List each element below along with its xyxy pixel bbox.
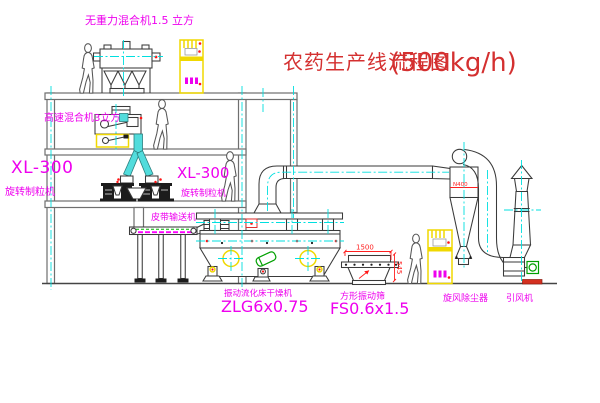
dim-sieve-height: 545: [395, 261, 403, 274]
label-granulator-right-name: 旋转制粒机: [181, 187, 226, 199]
label-granulator-left-model: XL-300: [11, 158, 73, 178]
cabinet-button: [439, 271, 442, 278]
gravity-free-mixer: [94, 42, 161, 94]
floor3-beam: [45, 201, 246, 208]
control-cabinet-bottom: [428, 230, 452, 284]
person-figure: [80, 44, 95, 93]
cad-drawing-canvas: 无重力混合机1.5 立方 农药生产线流程图 (500kg/h) 高速混合机3立方…: [0, 0, 600, 403]
cabinet-button: [434, 271, 437, 278]
cabinet-button: [185, 78, 188, 85]
mixer-outlet-valve: [120, 114, 129, 122]
label-sieve-model: FS0.6x1.5: [330, 299, 409, 318]
dim-cyclone: N400: [453, 182, 468, 188]
exhaust-duct: [259, 166, 433, 204]
person-figure: [154, 100, 169, 149]
cabinet-button: [444, 271, 447, 278]
rotary-discharge: [459, 259, 469, 265]
label-fan: 引风机: [506, 292, 533, 304]
discharge-chute: [134, 208, 144, 228]
fan-base: [523, 280, 543, 285]
label-granulator-left-name: 旋转制粒机: [5, 185, 55, 198]
cabinet-display-window: [433, 239, 446, 246]
label-granulator-right-model: XL-300: [177, 164, 229, 182]
cabinet-display-window: [185, 49, 197, 56]
control-cabinet-top: [180, 40, 203, 93]
rotary-granulators: [100, 181, 174, 202]
mixer-inlet-pipe: [123, 42, 130, 50]
flow-diagram: 无重力混合机1.5 立方 农药生产线流程图 (500kg/h) 高速混合机3立方…: [0, 0, 600, 403]
floor2-beam: [45, 149, 246, 155]
roof-beam: [45, 93, 297, 100]
dim-sieve-length: 1500: [356, 244, 374, 252]
label-cyclone: 旋风除尘器: [443, 292, 488, 304]
person-figure: [408, 234, 423, 283]
label-belt-conveyor: 皮带输送机: [151, 211, 196, 223]
cabinet-button: [190, 78, 193, 85]
page-title-rate: (500kg/h): [390, 48, 517, 78]
cabinet-button: [195, 78, 198, 85]
label-gravity-mixer: 无重力混合机1.5 立方: [85, 13, 194, 27]
vortex-outlet: [452, 149, 466, 163]
square-vibrating-sieve: [342, 250, 399, 285]
label-dryer-model: ZLG6x0.75: [221, 297, 309, 316]
label-hs-mixer: 高速混合机3立方: [44, 111, 120, 124]
